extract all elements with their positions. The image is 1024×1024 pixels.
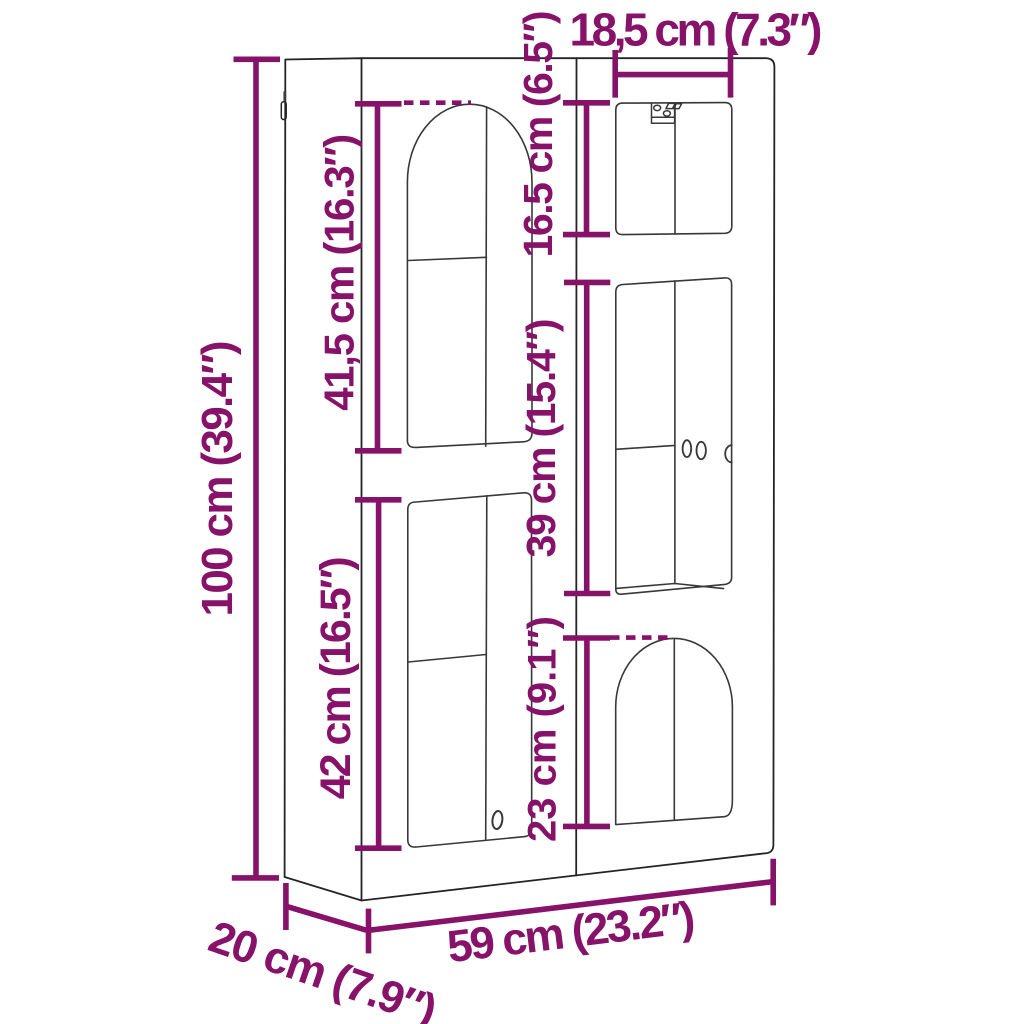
svg-text:23 cm (9.1″): 23 cm (9.1″)	[521, 616, 565, 842]
svg-text:18,5 cm (7.3″): 18,5 cm (7.3″)	[570, 3, 823, 55]
svg-text:41,5 cm (16.3″): 41,5 cm (16.3″)	[315, 134, 362, 411]
svg-text:100 cm (39.4″): 100 cm (39.4″)	[193, 341, 242, 617]
svg-text:39 cm (15.4″): 39 cm (15.4″)	[518, 319, 564, 558]
svg-text:42 cm (16.5″): 42 cm (16.5″)	[312, 556, 360, 799]
svg-text:16.5 cm (6.5″): 16.5 cm (6.5″)	[515, 11, 561, 258]
